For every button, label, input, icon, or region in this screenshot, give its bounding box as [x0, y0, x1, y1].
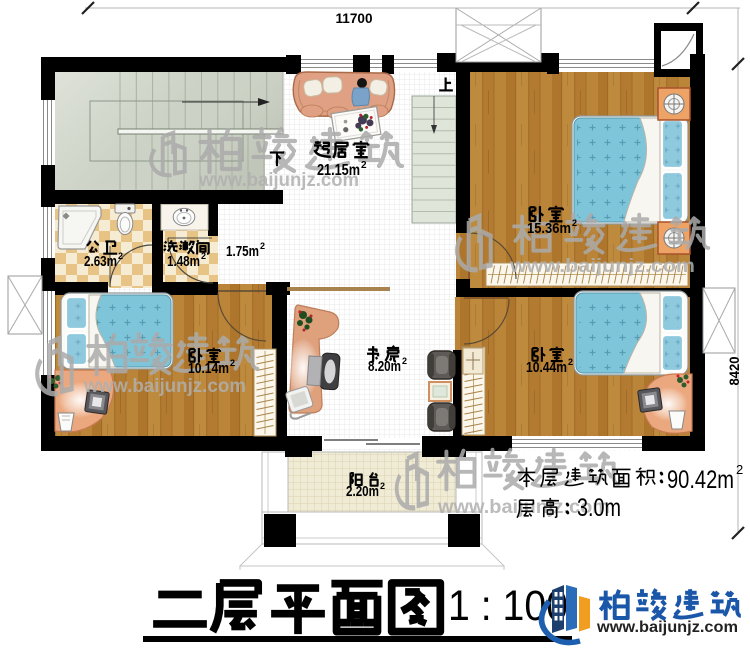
svg-text:15.36m: 15.36m [527, 220, 571, 237]
svg-text:2: 2 [260, 241, 265, 251]
svg-text:www.baijunjz.com: www.baijunjz.com [509, 256, 695, 277]
svg-text:8.20m: 8.20m [368, 358, 401, 375]
svg-text:2.63m: 2.63m [84, 253, 117, 270]
svg-text:10.44m: 10.44m [526, 359, 567, 376]
svg-text:2: 2 [118, 251, 123, 261]
svg-text:3.0m: 3.0m [577, 494, 621, 522]
svg-text:8420: 8420 [726, 356, 742, 385]
svg-text:21.15m: 21.15m [317, 162, 360, 179]
svg-text:2: 2 [201, 251, 206, 261]
svg-text:90.42m: 90.42m [667, 466, 734, 494]
svg-text:2: 2 [230, 358, 235, 368]
svg-text:1.75m: 1.75m [226, 243, 259, 260]
svg-text:10.14m: 10.14m [188, 360, 229, 377]
svg-text:www.baijunjz.com: www.baijunjz.com [596, 619, 738, 636]
svg-text:1.48m: 1.48m [167, 253, 200, 270]
svg-text:2: 2 [380, 481, 385, 491]
svg-text:11700: 11700 [336, 10, 373, 26]
svg-text:1 : 100: 1 : 100 [448, 582, 568, 630]
svg-text:2: 2 [568, 357, 573, 367]
svg-text:2: 2 [361, 160, 367, 171]
svg-text:2: 2 [402, 356, 407, 366]
svg-text:2.20m: 2.20m [346, 483, 379, 500]
svg-text:2: 2 [736, 462, 743, 477]
svg-text:2: 2 [572, 218, 577, 228]
svg-text:www.baijunjz.com: www.baijunjz.com [83, 375, 246, 397]
